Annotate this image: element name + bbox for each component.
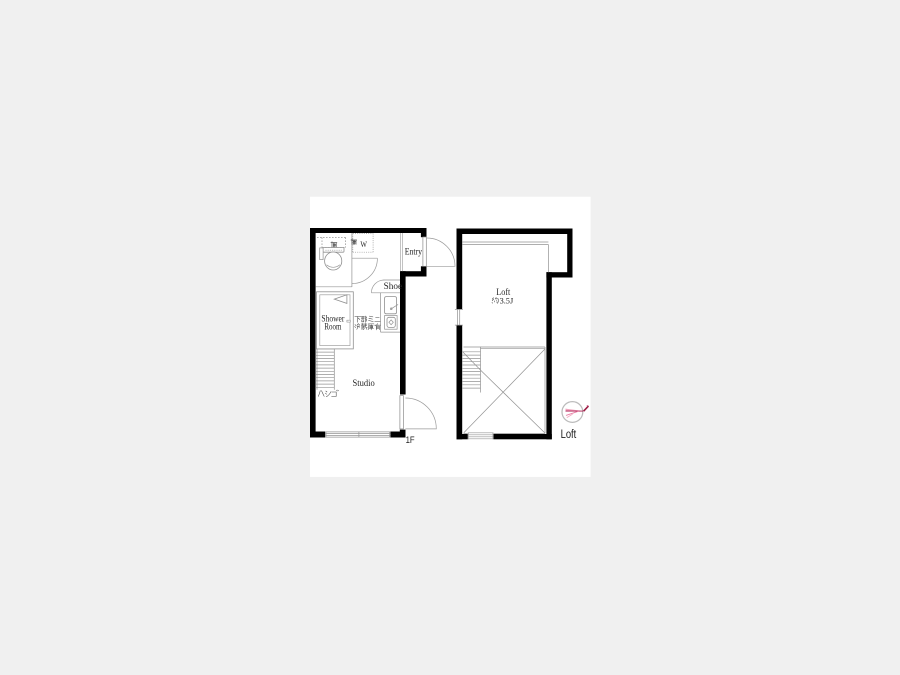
svg-text:Studio: Studio: [353, 379, 375, 389]
svg-text:3.5J: 3.5J: [500, 296, 514, 305]
svg-text:Shoe: Shoe: [384, 281, 402, 291]
svg-text:Room: Room: [324, 322, 341, 332]
svg-text:Loft: Loft: [561, 429, 577, 441]
svg-text:W: W: [360, 240, 367, 249]
svg-text:Entry: Entry: [405, 246, 423, 256]
svg-text:1F: 1F: [406, 435, 415, 446]
